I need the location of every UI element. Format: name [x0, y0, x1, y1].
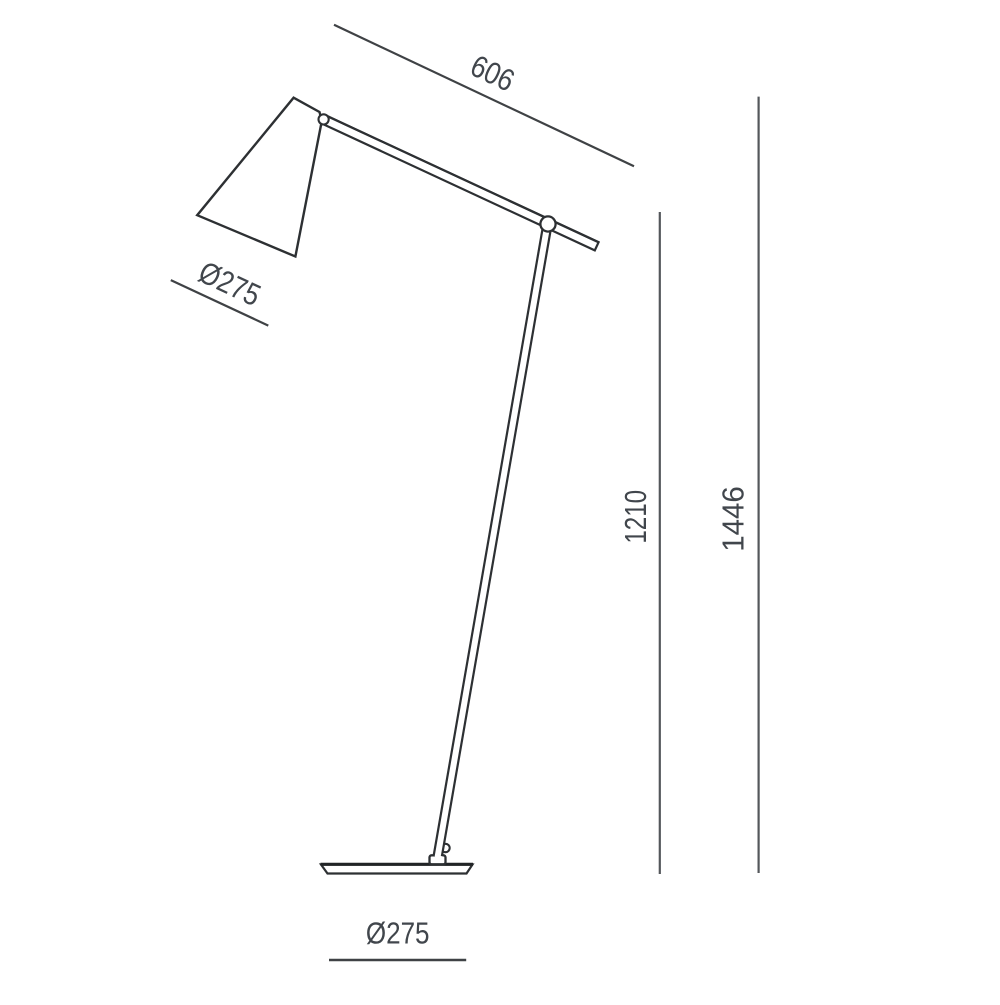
- svg-text:Ø275: Ø275: [366, 916, 430, 951]
- svg-text:Ø275: Ø275: [193, 255, 265, 313]
- svg-text:1446: 1446: [717, 486, 751, 551]
- svg-text:1210: 1210: [618, 490, 653, 544]
